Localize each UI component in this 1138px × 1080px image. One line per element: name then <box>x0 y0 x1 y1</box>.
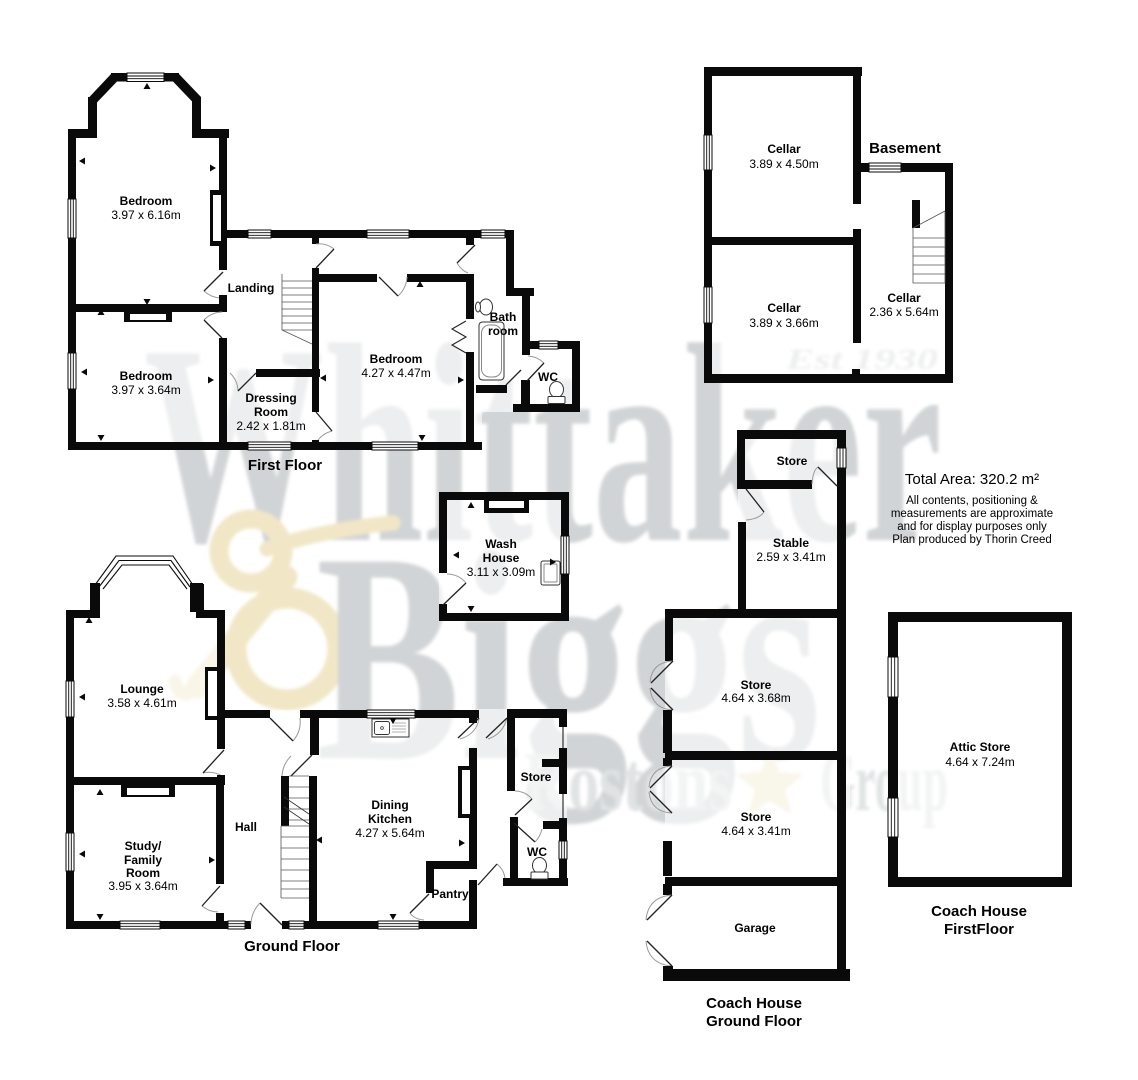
svg-text:Cellar: Cellar <box>887 291 921 305</box>
svg-text:Coach House: Coach House <box>706 995 802 1012</box>
svg-text:4.64 x 7.24m: 4.64 x 7.24m <box>945 755 1014 769</box>
svg-text:Room: Room <box>126 866 160 880</box>
svg-text:3.89 x 3.66m: 3.89 x 3.66m <box>749 316 818 330</box>
svg-text:2.59 x 3.41m: 2.59 x 3.41m <box>756 550 825 564</box>
svg-text:House: House <box>483 551 520 565</box>
svg-text:WC: WC <box>538 370 558 384</box>
svg-text:All contents, positioning &: All contents, positioning & <box>906 495 1038 507</box>
svg-text:3.97 x 3.64m: 3.97 x 3.64m <box>111 383 180 397</box>
svg-text:Family: Family <box>124 853 162 867</box>
svg-text:3.58 x 4.61m: 3.58 x 4.61m <box>107 696 176 710</box>
svg-text:4.27 x 5.64m: 4.27 x 5.64m <box>355 826 424 840</box>
svg-text:Cellar: Cellar <box>767 301 801 315</box>
svg-text:3.95 x 3.64m: 3.95 x 3.64m <box>108 879 177 893</box>
svg-text:Store: Store <box>741 810 772 824</box>
svg-text:Kitchen: Kitchen <box>368 812 412 826</box>
svg-text:Basement: Basement <box>869 140 941 157</box>
svg-text:2.42 x 1.81m: 2.42 x 1.81m <box>236 419 305 433</box>
svg-text:Pantry: Pantry <box>431 887 469 901</box>
svg-text:Wash: Wash <box>485 537 517 551</box>
svg-text:3.89 x 4.50m: 3.89 x 4.50m <box>749 157 818 171</box>
svg-text:Bedroom: Bedroom <box>370 352 423 366</box>
svg-text:Store: Store <box>741 678 772 692</box>
svg-text:Bath: Bath <box>490 310 517 324</box>
svg-text:Coach House: Coach House <box>931 903 1027 920</box>
svg-text:First Floor: First Floor <box>248 457 322 474</box>
svg-text:measurements are approximate: measurements are approximate <box>891 508 1053 520</box>
svg-text:Dressing: Dressing <box>245 391 296 405</box>
svg-text:3.97 x 6.16m: 3.97 x 6.16m <box>111 208 180 222</box>
svg-text:Room: Room <box>254 405 288 419</box>
svg-text:Attic Store: Attic Store <box>950 740 1011 754</box>
svg-text:room: room <box>488 324 518 338</box>
svg-text:Hall: Hall <box>235 820 257 834</box>
svg-text:2.36 x 5.64m: 2.36 x 5.64m <box>869 305 938 319</box>
svg-text:Plan produced by Thorin Creed: Plan produced by Thorin Creed <box>892 534 1052 546</box>
svg-text:Bedroom: Bedroom <box>120 369 173 383</box>
svg-text:4.64 x 3.68m: 4.64 x 3.68m <box>721 691 790 705</box>
svg-text:Total Area: 320.2 m²: Total Area: 320.2 m² <box>905 471 1039 488</box>
svg-text:4.27 x 4.47m: 4.27 x 4.47m <box>361 366 430 380</box>
svg-text:FirstFloor: FirstFloor <box>944 921 1014 938</box>
svg-text:Landing: Landing <box>228 281 275 295</box>
svg-text:Bedroom: Bedroom <box>120 194 173 208</box>
svg-text:Study/: Study/ <box>125 839 162 853</box>
svg-text:and for display purposes only: and for display purposes only <box>897 521 1047 533</box>
svg-text:Garage: Garage <box>734 921 776 935</box>
svg-text:Ground Floor: Ground Floor <box>706 1013 802 1030</box>
svg-text:4.64 x 3.41m: 4.64 x 3.41m <box>721 824 790 838</box>
svg-text:3.11 x 3.09m: 3.11 x 3.09m <box>467 565 535 579</box>
svg-text:Ground Floor: Ground Floor <box>244 938 340 955</box>
svg-text:Cellar: Cellar <box>767 142 801 156</box>
svg-text:Store: Store <box>777 454 808 468</box>
svg-text:Store: Store <box>521 770 552 784</box>
svg-text:Stable: Stable <box>773 536 809 550</box>
svg-text:Lounge: Lounge <box>120 682 164 696</box>
svg-text:WC: WC <box>527 845 547 859</box>
svg-text:Dining: Dining <box>371 798 408 812</box>
